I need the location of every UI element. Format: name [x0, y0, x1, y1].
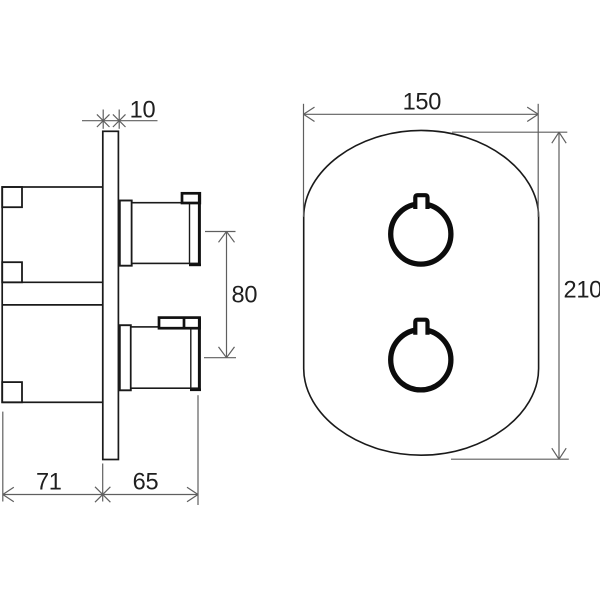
svg-text:65: 65 [133, 470, 159, 496]
svg-text:10: 10 [130, 98, 156, 124]
svg-text:80: 80 [232, 283, 258, 309]
svg-text:71: 71 [36, 470, 62, 496]
svg-text:210: 210 [564, 277, 600, 303]
svg-text:150: 150 [403, 89, 442, 115]
